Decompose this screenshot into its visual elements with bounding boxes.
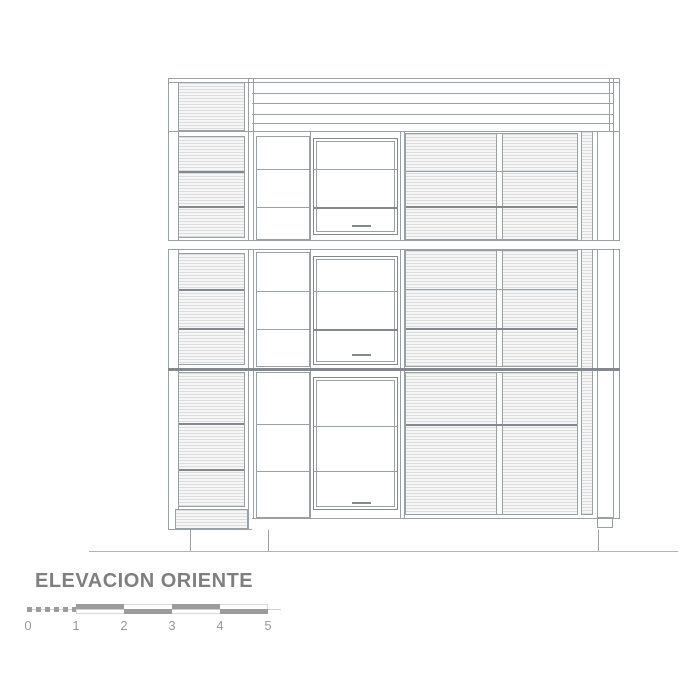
narrow-louver-strip (581, 131, 593, 515)
window-operator-mark (352, 225, 371, 227)
spandrel-divider (257, 471, 309, 472)
spandrel-divider (257, 291, 309, 292)
spandrel-panel-floor3 (256, 372, 310, 518)
louver-divider (179, 423, 244, 425)
window-operator-mark (352, 354, 371, 356)
mid-subcolumn-window-mullion (310, 131, 311, 518)
window-inner-frame (316, 259, 395, 362)
left-column-right-mullion (248, 78, 249, 530)
left-column-base-plinth (175, 509, 248, 529)
left-louver-panel-floor3 (178, 372, 245, 507)
left-louver-top-panel (178, 82, 245, 131)
window-inner-frame (316, 380, 395, 507)
right-column-left-mullion (597, 131, 598, 530)
scale-label-2: 2 (116, 618, 132, 633)
scale-label-3: 3 (164, 618, 180, 633)
window-inner-frame (316, 141, 395, 232)
support-post-middle (268, 530, 269, 551)
parapet-slat-line (252, 93, 613, 94)
parapet-slat-line (252, 114, 613, 115)
left-louver-panel-floor2 (178, 253, 245, 365)
louver-divider (406, 206, 577, 208)
drawing-title: ELEVACION ORIENTE (35, 570, 253, 593)
louver-divider (179, 469, 244, 471)
louver-divider (406, 328, 577, 330)
right-louver-panel-floor1 (405, 133, 578, 240)
spandrel-divider (257, 207, 309, 208)
parapet-right-edge-line (609, 78, 610, 131)
window-floor2 (313, 256, 398, 365)
ground-line (89, 551, 678, 552)
window-floor3 (313, 377, 398, 510)
louver-divider (179, 171, 244, 173)
right-column-base-box (597, 517, 613, 528)
window-pane-divider (314, 291, 397, 292)
parapet-slat-line (252, 123, 613, 124)
louver-divider (179, 328, 244, 330)
window-pane-divider (314, 169, 397, 170)
scale-label-0: 0 (20, 618, 36, 633)
spandrel-panel-floor1 (256, 136, 310, 240)
window-pane-divider (314, 207, 397, 209)
scale-bar-segment-1-2 (76, 604, 124, 609)
parapet-bottom-line (168, 131, 620, 132)
scale-bar-segment-3-4 (172, 604, 220, 609)
spandrel-divider (257, 169, 309, 170)
floor-band-1 (168, 240, 620, 250)
right-louver-panel-floor3 (405, 372, 578, 515)
louver-center-mullion (496, 134, 503, 239)
window-pane-divider (314, 329, 397, 331)
spandrel-divider (257, 424, 309, 425)
scale-label-4: 4 (212, 618, 228, 633)
right-column-right-mullion (613, 78, 614, 530)
mid-right-mullion-a (400, 131, 401, 530)
scale-bar-segment-2-3 (124, 609, 172, 614)
louver-divider (406, 424, 577, 426)
mid-section-left-mullion (253, 78, 254, 530)
louver-center-mullion (496, 373, 503, 514)
scale-label-5: 5 (260, 618, 276, 633)
window-operator-mark (352, 502, 371, 504)
support-post-right (598, 530, 599, 551)
elevation-drawing-canvas: ELEVACION ORIENTE 0 1 2 3 4 5 (0, 0, 700, 700)
louver-divider (406, 289, 577, 290)
louver-center-mullion (496, 251, 503, 366)
parapet-slat-line (252, 103, 613, 104)
spandrel-panel-floor2 (256, 252, 310, 367)
louver-divider (406, 171, 577, 172)
spandrel-divider (257, 329, 309, 330)
base-band (252, 518, 620, 530)
scale-bar-checker-segment (27, 607, 76, 612)
window-pane-divider (314, 471, 397, 472)
floor-band-2 (168, 368, 620, 371)
right-louver-panel-floor2 (405, 250, 578, 367)
louver-divider (179, 289, 244, 291)
window-pane-divider (314, 426, 397, 427)
scale-bar: 0 1 2 3 4 5 (27, 604, 287, 636)
support-post-left (190, 530, 191, 551)
louver-divider (179, 206, 244, 208)
left-louver-panel-floor1 (178, 136, 245, 238)
scale-bar-segment-4-5 (220, 609, 268, 614)
scale-label-1: 1 (68, 618, 84, 633)
window-floor1 (313, 138, 398, 235)
